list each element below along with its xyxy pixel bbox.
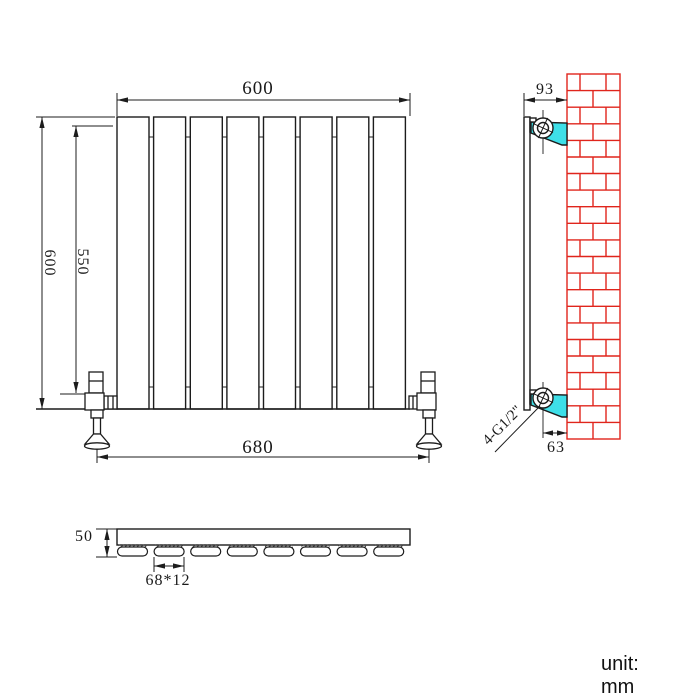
plan-panel-capsule bbox=[191, 547, 221, 556]
dim-panel-size: 68*12 bbox=[146, 572, 191, 590]
radiator-panel bbox=[227, 117, 259, 409]
radiator-panel bbox=[154, 117, 186, 409]
radiator-panels bbox=[117, 117, 405, 409]
plan-panel-capsule bbox=[118, 547, 148, 556]
wall-bracket-top bbox=[530, 110, 567, 154]
plan-panel-capsule bbox=[374, 547, 404, 556]
valve-assembly bbox=[85, 372, 118, 462]
plan-panel-capsule bbox=[154, 547, 184, 556]
plan-panel-capsule bbox=[227, 547, 257, 556]
side-view bbox=[495, 74, 620, 452]
radiator-panel bbox=[300, 117, 332, 409]
plan-panel-sections bbox=[118, 545, 404, 557]
radiator-side-profile bbox=[524, 117, 530, 410]
valve-nut bbox=[104, 396, 117, 409]
brick-wall bbox=[567, 74, 620, 439]
dim-height-left: 600 bbox=[40, 250, 58, 277]
valve-assembly bbox=[409, 372, 442, 462]
plan-view bbox=[96, 529, 410, 572]
plan-panel-capsule bbox=[264, 547, 294, 556]
radiator-panel bbox=[117, 117, 149, 409]
dim-width-top: 600 bbox=[242, 78, 274, 100]
radiator-panel bbox=[264, 117, 296, 409]
technical-drawing: 600 600 550 680 93 63 4-G1/2" 50 68*12 u… bbox=[0, 0, 700, 700]
radiator-panel bbox=[337, 117, 369, 409]
plan-panel-capsule bbox=[301, 547, 331, 556]
dim-depth-top: 93 bbox=[536, 81, 554, 99]
unit-label: unit: mm bbox=[601, 653, 667, 699]
dim-height-inner: 550 bbox=[73, 249, 91, 276]
plan-body bbox=[117, 529, 410, 545]
front-view bbox=[36, 93, 442, 463]
drawing-canvas bbox=[0, 0, 700, 700]
dim-plan-height: 50 bbox=[75, 528, 93, 546]
dim-depth-bottom: 63 bbox=[547, 439, 565, 457]
radiator-panel bbox=[190, 117, 222, 409]
dim-valve-span: 680 bbox=[242, 437, 274, 459]
plan-panel-capsule bbox=[337, 547, 367, 556]
radiator-panel bbox=[373, 117, 405, 409]
